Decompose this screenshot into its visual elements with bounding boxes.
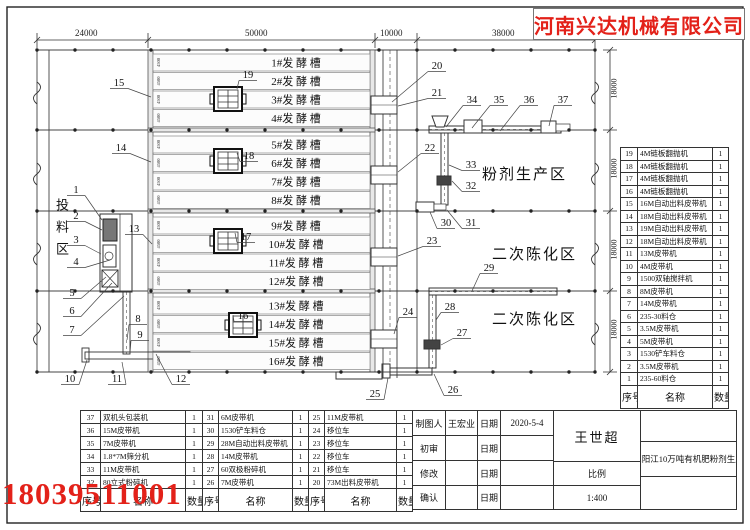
- callout-number: 2: [73, 211, 78, 222]
- trough-side-dim: 4500: [156, 113, 161, 123]
- title-block-blank-bottom: [641, 477, 736, 509]
- callout-number: 10: [65, 374, 76, 385]
- grid-column-dot: [415, 48, 418, 51]
- grid-column-dot: [415, 128, 418, 131]
- part-qty: 1: [397, 476, 413, 489]
- company-title: 河南兴达机械有限公司: [533, 8, 745, 40]
- callout-number: 6: [69, 306, 74, 317]
- zone-label-feed: 投料区: [52, 198, 71, 264]
- part-qty: 1: [293, 411, 309, 424]
- callout-number: 32: [466, 181, 477, 192]
- part-qty: 1: [713, 260, 729, 273]
- trough-band: [153, 254, 370, 271]
- part-no: 27: [203, 463, 219, 476]
- revision-label: 修改: [413, 461, 446, 486]
- part-qty: 1: [713, 173, 729, 186]
- trough-band: [153, 273, 370, 290]
- parts-row: 3 1530铲车料仓 1: [621, 348, 729, 361]
- part-qty: 1: [186, 411, 203, 424]
- part-no: 18: [621, 160, 638, 173]
- part-name: 60双极粉碎机: [219, 463, 293, 476]
- parts-row: 13 19M自动出料皮带机 1: [621, 223, 729, 236]
- part-name: 4M皮带机: [638, 260, 713, 273]
- grid-column-dot: [225, 48, 228, 51]
- trough-side-dim: 4500: [156, 76, 161, 86]
- grid-column-dot: [111, 209, 114, 212]
- trough-side-dim: 4500: [156, 158, 161, 168]
- part-name: 5M皮带机: [638, 335, 713, 348]
- part-qty: 1: [186, 476, 203, 489]
- part-name: 1500双轴搅拌机: [638, 273, 713, 286]
- callout-leader: [500, 106, 538, 132]
- callout-number: 25: [370, 389, 381, 400]
- part-qty: 1: [713, 185, 729, 198]
- grid-column-dot: [339, 289, 342, 292]
- trough-band: [153, 54, 370, 71]
- dim-50000: 50000: [245, 28, 268, 38]
- dim-18000-4: 18000: [610, 310, 619, 350]
- grid-column-dot: [453, 48, 456, 51]
- header-name: 名称: [638, 385, 713, 408]
- grid-column-dot: [187, 128, 190, 131]
- parts-row: 30 1530铲车料仓 1: [203, 424, 309, 437]
- trough-label: 16#发 酵 槽: [269, 354, 324, 368]
- part-no: 2: [621, 360, 638, 373]
- parts-row: 19 4M链板翻抛机 1: [621, 148, 729, 161]
- dim-10000: 10000: [380, 28, 403, 38]
- callout-number: 14: [116, 143, 127, 154]
- part-no: 20: [309, 476, 325, 489]
- grid-column-dot: [225, 289, 228, 292]
- parts-row: 10 4M皮带机 1: [621, 260, 729, 273]
- date-value-3: [501, 461, 554, 486]
- dim-18000-3: 18000: [610, 230, 619, 270]
- part-no: 8: [621, 285, 638, 298]
- trough-side-dim: 4500: [156, 139, 161, 149]
- grid-column-dot: [491, 289, 494, 292]
- trough-label: 6#发 酵 槽: [271, 156, 321, 170]
- grid-column-dot: [187, 209, 190, 212]
- part-qty: 1: [713, 323, 729, 336]
- part-name: 16M自动出料皮带机: [638, 198, 713, 211]
- part-no: 21: [309, 463, 325, 476]
- grid-column-dot: [593, 128, 596, 131]
- part-qty: 1: [713, 373, 729, 386]
- part-qty: 1: [713, 210, 729, 223]
- parts-row: 23 移位车 1: [309, 437, 413, 450]
- project-name: 广东阳江10万吨有机肥粉剂生产线: [641, 442, 736, 477]
- part-qty: 1: [397, 463, 413, 476]
- grid-column-dot: [529, 48, 532, 51]
- grid-column-dot: [377, 209, 380, 212]
- callout-number: 19: [243, 70, 254, 81]
- part-name: 73M出料皮带机: [325, 476, 397, 489]
- trough-label: 9#发 酵 槽: [271, 219, 321, 233]
- parts-header-row: 序号 名称 数量: [203, 489, 309, 512]
- grid-column-dot: [377, 128, 380, 131]
- grid-column-dot: [35, 128, 38, 131]
- scale-value: 1:400: [554, 486, 641, 509]
- trough-band: [153, 217, 370, 234]
- first-review-name: [446, 436, 478, 461]
- part-qty: 1: [293, 437, 309, 450]
- header-no: 序号: [621, 385, 638, 408]
- date-label-4: 日期: [478, 486, 501, 509]
- title-block-blank-top: [641, 411, 736, 442]
- grid-column-dot: [225, 209, 228, 212]
- parts-row: 9 1500双轴搅拌机 1: [621, 273, 729, 286]
- part-no: 17: [621, 173, 638, 186]
- part-no: 37: [81, 411, 101, 424]
- part-qty: 1: [293, 476, 309, 489]
- parts-row: 21 移位车 1: [309, 463, 413, 476]
- revision-name: [446, 461, 478, 486]
- part-name: 4M链板翻抛机: [638, 160, 713, 173]
- callout-leader: [441, 339, 471, 346]
- part-qty: 1: [397, 437, 413, 450]
- part-name: 11M皮带机: [101, 463, 186, 476]
- grid-column-dot: [491, 209, 494, 212]
- dim-18000-2: 18000: [610, 149, 619, 189]
- grid-column-dot: [263, 128, 266, 131]
- grid-column-dot: [529, 128, 532, 131]
- parts-row: 33 11M皮带机 1: [81, 463, 203, 476]
- callout-number: 9: [137, 330, 142, 341]
- grid-column-dot: [491, 48, 494, 51]
- trough-label: 3#发 酵 槽: [271, 93, 321, 107]
- parts-row: 27 60双极粉碎机 1: [203, 463, 309, 476]
- grid-column-dot: [339, 128, 342, 131]
- grid-column-dot: [377, 289, 380, 292]
- grid-column-dot: [415, 209, 418, 212]
- grid-column-dot: [339, 209, 342, 212]
- part-name: 1530铲车料仓: [638, 348, 713, 361]
- trough-label: 12#发 酵 槽: [269, 274, 324, 288]
- confirm-label: 确认: [413, 486, 446, 509]
- callout-number: 8: [135, 314, 140, 325]
- part-no: 33: [81, 463, 101, 476]
- part-qty: 1: [713, 248, 729, 261]
- part-no: 25: [309, 411, 325, 424]
- trough-band: [153, 91, 370, 108]
- part-name: 4M链板翻抛机: [638, 185, 713, 198]
- part-qty: 1: [713, 285, 729, 298]
- grid-column-dot: [301, 48, 304, 51]
- grid-column-dot: [453, 209, 456, 212]
- trough-band: [153, 236, 370, 253]
- part-name: 19M自动出料皮带机: [638, 223, 713, 236]
- part-qty: 1: [186, 437, 203, 450]
- part-no: 16: [621, 185, 638, 198]
- part-no: 9: [621, 273, 638, 286]
- callout-number: 5: [69, 288, 74, 299]
- trough-label: 1#发 酵 槽: [271, 56, 321, 70]
- part-qty: 1: [713, 235, 729, 248]
- grid-column-dot: [149, 48, 152, 51]
- grid-column-dot: [415, 289, 418, 292]
- part-name: 7M皮带机: [101, 437, 186, 450]
- title-block: 制图人 王宏业 日期 2020-5-4 初审 日期 修改 日期 确认 日期 王世…: [412, 410, 737, 510]
- trough-band: [153, 297, 370, 314]
- parts-row: 31 6M皮带机 1: [203, 411, 309, 424]
- part-qty: 1: [293, 424, 309, 437]
- callout-number: 24: [403, 307, 414, 318]
- grid-column-dot: [35, 370, 38, 373]
- trough-band: [153, 192, 370, 209]
- grid-column-dot: [187, 48, 190, 51]
- zone-label-aging-1: 二次陈化区: [492, 243, 577, 264]
- grid-column-dot: [567, 370, 570, 373]
- grid-column-dot: [529, 289, 532, 292]
- grid-column-dot: [35, 48, 38, 51]
- callout-number: 12: [176, 374, 187, 385]
- trough-band: [153, 353, 370, 370]
- part-qty: 1: [713, 223, 729, 236]
- date-label-2: 日期: [478, 436, 501, 461]
- callout-leader: [130, 341, 149, 354]
- part-name: 4M链板翻抛机: [638, 148, 713, 161]
- trough-label: 4#发 酵 槽: [271, 111, 321, 125]
- grid-column-dot: [593, 209, 596, 212]
- part-qty: 1: [713, 360, 729, 373]
- grid-column-dot: [567, 128, 570, 131]
- part-name: 移位车: [325, 424, 397, 437]
- part-name: 14M皮带机: [638, 298, 713, 311]
- grid-column-dot: [453, 370, 456, 373]
- part-qty: 1: [397, 450, 413, 463]
- callout-number: 37: [558, 95, 569, 106]
- trough-label: 8#发 酵 槽: [271, 193, 321, 207]
- trough-side-dim: 4500: [156, 176, 161, 186]
- part-no: 34: [81, 450, 101, 463]
- part-no: 10: [621, 260, 638, 273]
- trough-band: [153, 110, 370, 127]
- part-no: 4: [621, 335, 638, 348]
- callout-number: 35: [494, 95, 505, 106]
- parts-row: 5 3.5M皮带机 1: [621, 323, 729, 336]
- callout-leader: [436, 313, 459, 321]
- callout-leader: [67, 196, 102, 221]
- callout-number: 28: [445, 302, 456, 313]
- callout-leader: [110, 89, 151, 98]
- trough-label: 5#发 酵 槽: [271, 138, 321, 152]
- part-name: 235-60料仓: [638, 373, 713, 386]
- date-value-4: [501, 486, 554, 509]
- header-qty: 数量: [713, 385, 729, 408]
- grid-column-dot: [263, 209, 266, 212]
- part-name: 1530铲车料仓: [219, 424, 293, 437]
- date-label-3: 日期: [478, 461, 501, 486]
- dim-38000: 38000: [492, 28, 515, 38]
- trough-side-dim: 4500: [156, 356, 161, 366]
- grid-column-dot: [263, 289, 266, 292]
- grid-column-dot: [149, 289, 152, 292]
- grid-column-dot: [529, 209, 532, 212]
- header-no: 序号: [203, 489, 219, 512]
- part-name: 235-30料仓: [638, 310, 713, 323]
- part-no: 19: [621, 148, 638, 161]
- grid-column-dot: [301, 289, 304, 292]
- scale-label: 比例: [554, 462, 641, 486]
- grid-column-dot: [415, 370, 418, 373]
- part-name: 11M皮带机: [325, 411, 397, 424]
- parts-row: 17 4M链板翻抛机 1: [621, 173, 729, 186]
- grid-column-dot: [529, 370, 532, 373]
- callout-number: 17: [241, 232, 252, 243]
- parts-row: 1 235-60料仓 1: [621, 373, 729, 386]
- parts-row: 29 28M自动出料皮带机 1: [203, 437, 309, 450]
- parts-row: 16 4M链板翻抛机 1: [621, 185, 729, 198]
- part-no: 30: [203, 424, 219, 437]
- parts-row: 4 5M皮带机 1: [621, 335, 729, 348]
- part-name: 18M自动出料皮带机: [638, 235, 713, 248]
- drafter-label: 制图人: [413, 411, 446, 436]
- trough-side-dim: 4500: [156, 94, 161, 104]
- callout-number: 16: [238, 311, 249, 322]
- grid-column-dot: [453, 128, 456, 131]
- callout-number: 20: [432, 61, 443, 72]
- callout-number: 21: [432, 88, 443, 99]
- grid-column-dot: [73, 48, 76, 51]
- parts-row: 24 移位车 1: [309, 424, 413, 437]
- trough-label: 10#发 酵 槽: [269, 237, 324, 251]
- header-qty: 数量: [293, 489, 309, 512]
- part-qty: 1: [713, 198, 729, 211]
- part-no: 3: [621, 348, 638, 361]
- first-review-label: 初审: [413, 436, 446, 461]
- grid-column-dot: [339, 48, 342, 51]
- header-name: 名称: [219, 489, 293, 512]
- parts-row: 22 移位车 1: [309, 450, 413, 463]
- date-label-1: 日期: [478, 411, 501, 436]
- parts-row: 7 14M皮带机 1: [621, 298, 729, 311]
- parts-row: 25 11M皮带机 1: [309, 411, 413, 424]
- zone-label-aging-2: 二次陈化区: [492, 308, 577, 329]
- trough-side-dim: 4500: [156, 337, 161, 347]
- phone-number: 18039511001: [2, 476, 182, 512]
- trough-label: 11#发 酵 槽: [269, 256, 324, 270]
- part-no: 13: [621, 223, 638, 236]
- part-name: 3.5M皮带机: [638, 323, 713, 336]
- trough-band: [153, 73, 370, 90]
- part-no: 29: [203, 437, 219, 450]
- part-qty: 1: [713, 335, 729, 348]
- grid-column-dot: [111, 289, 114, 292]
- part-qty: 1: [293, 450, 309, 463]
- trough-label: 2#发 酵 槽: [271, 74, 321, 88]
- trough-label: 7#发 酵 槽: [271, 175, 321, 189]
- header-qty: 数量: [397, 489, 413, 512]
- callout-number: 36: [524, 95, 535, 106]
- callout-number: 29: [484, 263, 495, 274]
- parts-row: 12 18M自动出料皮带机 1: [621, 235, 729, 248]
- parts-row: 15 16M自动出料皮带机 1: [621, 198, 729, 211]
- part-no: 23: [309, 437, 325, 450]
- trough-side-dim: 4500: [156, 276, 161, 286]
- grid-column-dot: [339, 370, 342, 373]
- grid-column-dot: [187, 289, 190, 292]
- bottom-parts-table-b: 31 6M皮带机 1 30 1530铲车料仓 1 29 28M自动出料皮带机 1: [202, 410, 309, 512]
- grid-column-dot: [491, 128, 494, 131]
- callout-leader: [398, 247, 441, 257]
- trough-band: [153, 155, 370, 172]
- parts-row: 18 4M链板翻抛机 1: [621, 160, 729, 173]
- grid-column-dot: [111, 128, 114, 131]
- parts-row: 37 双机头包装机 1: [81, 411, 203, 424]
- trough-side-dim: 4500: [156, 195, 161, 205]
- part-no: 35: [81, 437, 101, 450]
- part-no: 14: [621, 210, 638, 223]
- part-no: 24: [309, 424, 325, 437]
- grid-column-dot: [567, 48, 570, 51]
- parts-row: 26 7M皮带机 1: [203, 476, 309, 489]
- trough-band: [153, 136, 370, 153]
- part-qty: 1: [186, 450, 203, 463]
- part-name: 移位车: [325, 437, 397, 450]
- callout-leader: [112, 154, 151, 163]
- parts-row: 11 13M皮带机 1: [621, 248, 729, 261]
- grid-column-dot: [35, 209, 38, 212]
- callout-number: 3: [73, 235, 78, 246]
- part-qty: 1: [713, 298, 729, 311]
- part-no: 1: [621, 373, 638, 386]
- parts-row: 36 15M皮带机 1: [81, 424, 203, 437]
- parts-row: 6 235-30料仓 1: [621, 310, 729, 323]
- part-name: 8M皮带机: [638, 285, 713, 298]
- part-qty: 1: [397, 411, 413, 424]
- callout-number: 4: [73, 257, 79, 268]
- callout-number: 15: [114, 78, 125, 89]
- date-value-1: 2020-5-4: [501, 411, 554, 436]
- part-no: 26: [203, 476, 219, 489]
- part-no: 31: [203, 411, 219, 424]
- trough-side-dim: 4500: [156, 257, 161, 267]
- trough-band: [153, 173, 370, 190]
- part-no: 22: [309, 450, 325, 463]
- part-no: 11: [621, 248, 638, 261]
- callout-number: 33: [466, 160, 477, 171]
- part-qty: 1: [186, 424, 203, 437]
- grid-column-dot: [149, 370, 152, 373]
- part-name: 移位车: [325, 450, 397, 463]
- grid-column-dot: [301, 370, 304, 373]
- grid-column-dot: [593, 289, 596, 292]
- part-name: 1.8*7M筛分机: [101, 450, 186, 463]
- grid-column-dot: [453, 289, 456, 292]
- callout-number: 34: [467, 95, 478, 106]
- part-qty: 1: [713, 310, 729, 323]
- parts-header-row: 序号 名称 数量: [309, 489, 413, 512]
- grid-column-dot: [149, 209, 152, 212]
- callout-leader: [67, 222, 102, 231]
- grid-column-dot: [301, 209, 304, 212]
- parts-row: 28 14M皮带机 1: [203, 450, 309, 463]
- part-name: 7M皮带机: [219, 476, 293, 489]
- callout-number: 7: [69, 325, 74, 336]
- part-qty: 1: [713, 148, 729, 161]
- grid-column-dot: [225, 370, 228, 373]
- trough-label: 13#发 酵 槽: [269, 299, 324, 313]
- trough-side-dim: 4500: [156, 220, 161, 230]
- part-name: 15M皮带机: [101, 424, 186, 437]
- trough-side-dim: 4500: [156, 239, 161, 249]
- trough-side-dim: 4500: [156, 57, 161, 67]
- grid-column-dot: [263, 370, 266, 373]
- grid-column-dot: [593, 370, 596, 373]
- part-name: 双机头包装机: [101, 411, 186, 424]
- callout-number: 23: [427, 236, 438, 247]
- parts-row: 14 18M自动出料皮带机 1: [621, 210, 729, 223]
